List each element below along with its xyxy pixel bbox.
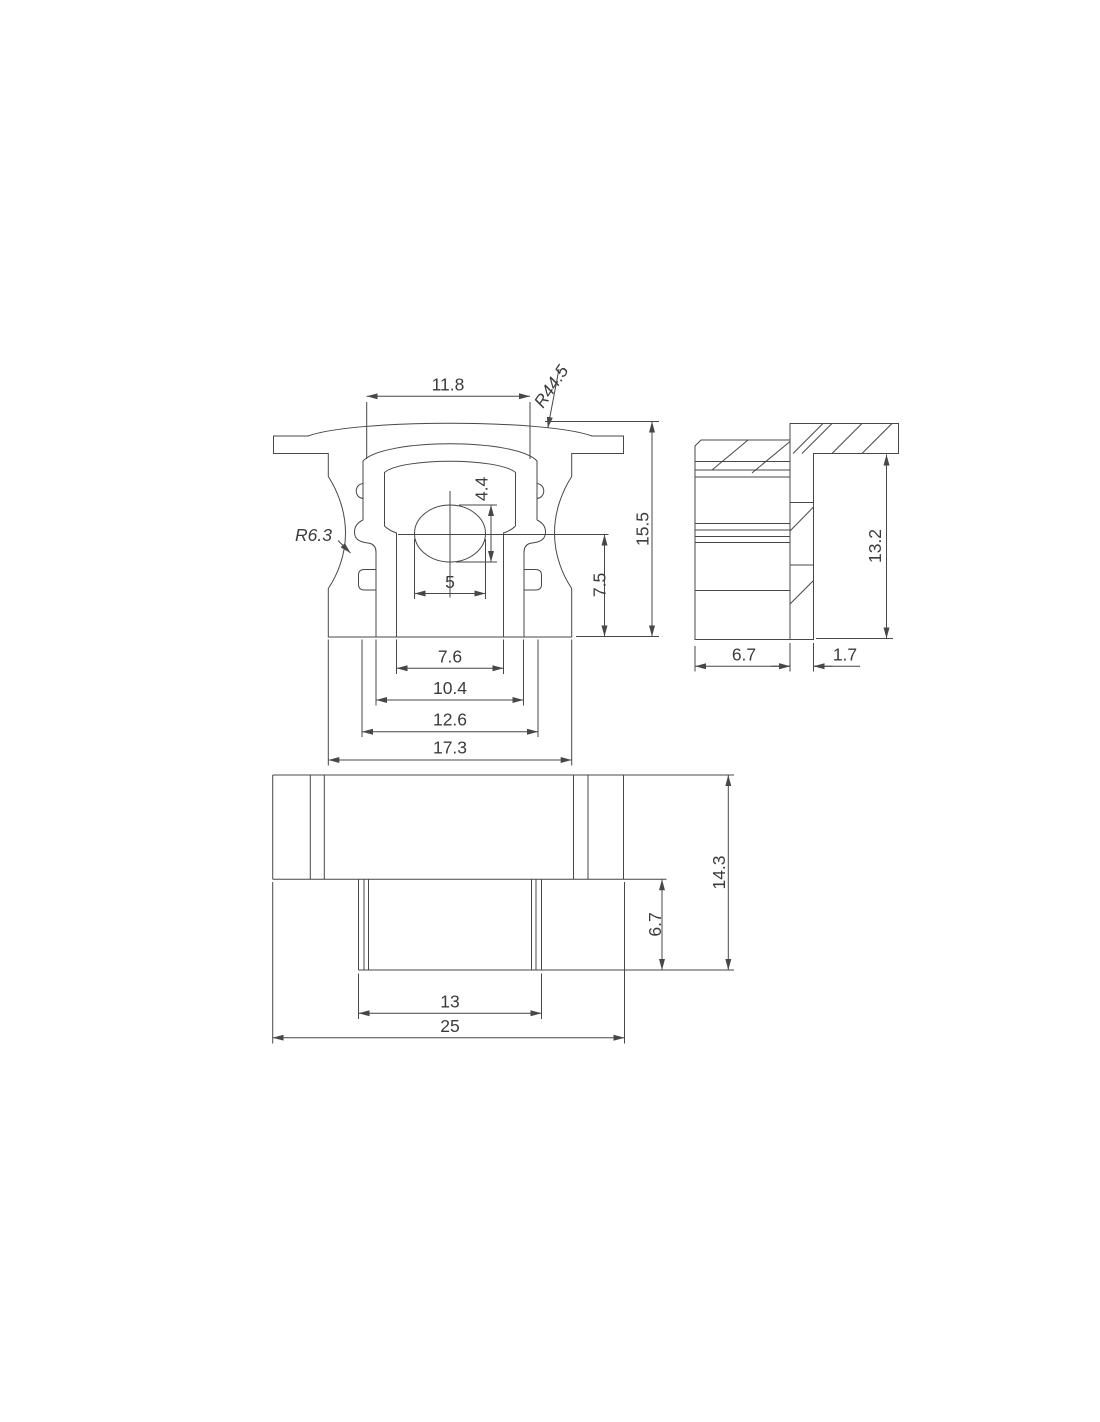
bottom-view [273,775,734,1044]
dim-front-hole-height: 4.4 [472,477,492,502]
dim-front-total-height: 15.5 [633,512,653,546]
dim-front-top-radius: R44.5 [530,361,573,411]
dim-front-hole-height-lines [456,505,497,562]
front-bump-big-left [359,570,377,591]
dim-front-lower-height: 7.5 [590,573,610,597]
dimension-labels: 11.8 R44.5 R6.3 4.4 5 7.5 15.5 7.6 10.4 … [295,361,885,1036]
front-bump-big-right [524,570,542,591]
dim-side-body-depth: 6.7 [732,645,756,665]
dim-bottom-total-width: 25 [440,1016,459,1036]
front-bump-small-left [356,484,363,499]
drawing-page: 11.8 R44.5 R6.3 4.4 5 7.5 15.5 7.6 10.4 … [0,0,1100,1422]
dim-side-flange-thickness: 1.7 [833,645,857,665]
technical-drawing: 11.8 R44.5 R6.3 4.4 5 7.5 15.5 7.6 10.4 … [0,0,1100,1422]
dim-front-total-width: 17.3 [433,738,467,758]
front-bump-small-right [537,484,544,499]
dim-front-step-width: 10.4 [433,678,467,698]
dim-front-body-width: 12.6 [433,710,467,730]
dim-front-top-width: 11.8 [432,375,465,395]
dim-bottom-body-width: 13 [440,992,459,1012]
front-knob-right [524,520,546,637]
side-strip-divisions [790,503,814,566]
dim-front-slot-width: 7.6 [438,647,462,667]
dim-front-side-radius: R6.3 [295,525,332,545]
bottom-body-edge-lines [359,879,542,970]
front-channel-wall-right [504,526,516,637]
front-knob-left [355,520,377,637]
side-hatching [712,424,892,605]
front-view [274,369,660,766]
dim-side-height: 13.2 [865,529,885,563]
front-channel-wall-left [385,526,397,637]
dim-front-hole-width: 5 [445,572,455,592]
bottom-flange-inner-lines [310,775,588,879]
dim-bottom-body-height: 6.7 [645,912,665,936]
side-ridge-lines [695,462,790,591]
dim-bottom-total-height: 14.3 [709,855,729,889]
